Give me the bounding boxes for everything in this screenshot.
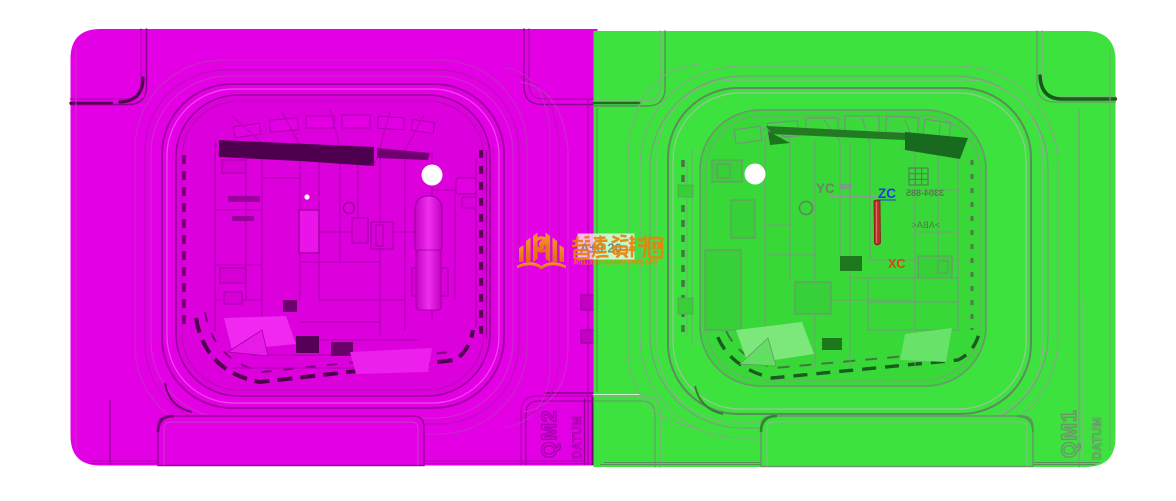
svg-text:ZC: ZC bbox=[878, 186, 896, 201]
svg-text:QM1: QM1 bbox=[1058, 409, 1081, 458]
svg-text:INTELLIGENT MANUFACTURING DATA: INTELLIGENT MANUFACTURING DATA bbox=[574, 260, 658, 267]
svg-text:DATUM: DATUM bbox=[572, 416, 584, 459]
svg-text:DATUM: DATUM bbox=[1092, 417, 1104, 460]
svg-text:3304-885: 3304-885 bbox=[906, 188, 944, 198]
svg-text:>ABA<: >ABA< bbox=[911, 220, 940, 230]
svg-text:QM2: QM2 bbox=[538, 409, 561, 458]
svg-text:YC: YC bbox=[816, 181, 835, 196]
svg-text:XC: XC bbox=[888, 257, 905, 271]
